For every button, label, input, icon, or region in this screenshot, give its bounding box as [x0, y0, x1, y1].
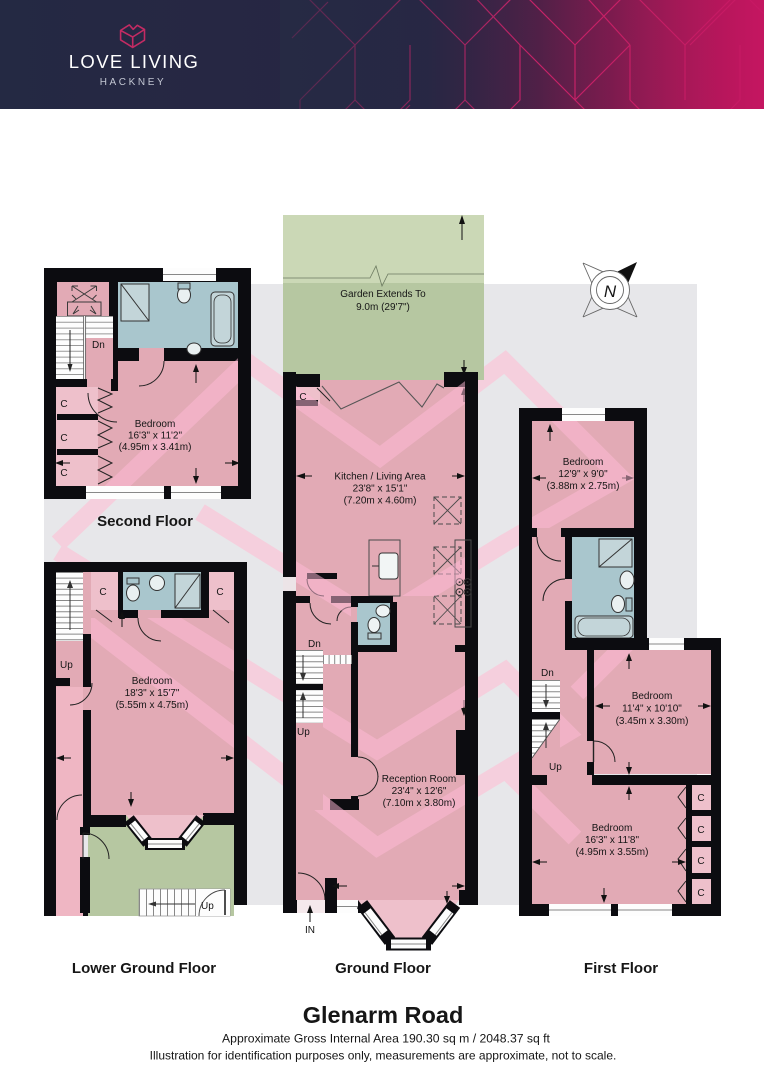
svg-text:9.0m (29'7"): 9.0m (29'7") — [356, 302, 410, 313]
svg-text:C: C — [697, 856, 704, 867]
svg-text:Lower Ground Floor: Lower Ground Floor — [72, 960, 216, 977]
svg-text:(3.45m x 3.30m): (3.45m x 3.30m) — [616, 716, 689, 727]
svg-text:Approximate Gross Internal Are: Approximate Gross Internal Area 190.30 s… — [222, 1032, 551, 1046]
svg-text:Reception Room: Reception Room — [382, 774, 456, 785]
svg-text:Second Floor: Second Floor — [97, 513, 193, 530]
svg-text:11'4" x 10'10": 11'4" x 10'10" — [622, 704, 682, 715]
svg-text:C: C — [697, 825, 704, 836]
svg-text:Dn: Dn — [308, 639, 321, 650]
svg-text:23'8" x 15'1": 23'8" x 15'1" — [353, 484, 408, 495]
svg-text:Dn: Dn — [92, 340, 105, 351]
svg-text:Bedroom: Bedroom — [563, 457, 604, 468]
svg-text:Illustration for identificatio: Illustration for identification purposes… — [150, 1049, 617, 1063]
svg-text:12'9" x 9'0": 12'9" x 9'0" — [558, 469, 608, 480]
svg-text:(4.95m x 3.41m): (4.95m x 3.41m) — [119, 442, 192, 453]
svg-text:(3.88m x 2.75m): (3.88m x 2.75m) — [547, 481, 620, 492]
svg-text:C: C — [697, 793, 704, 804]
svg-text:Garden Extends To: Garden Extends To — [340, 289, 426, 300]
svg-text:Bedroom: Bedroom — [592, 823, 633, 834]
svg-text:Kitchen / Living Area: Kitchen / Living Area — [334, 472, 426, 483]
svg-text:Up: Up — [297, 727, 310, 738]
svg-text:16'3" x 11'8": 16'3" x 11'8" — [585, 835, 640, 846]
svg-text:(4.95m x 3.55m): (4.95m x 3.55m) — [576, 847, 649, 858]
svg-text:C: C — [60, 399, 67, 410]
svg-text:Bedroom: Bedroom — [132, 676, 173, 687]
svg-text:18'3" x 15'7": 18'3" x 15'7" — [125, 688, 180, 699]
svg-text:Glenarm Road: Glenarm Road — [303, 1002, 464, 1028]
svg-text:Up: Up — [60, 660, 73, 671]
svg-text:Bedroom: Bedroom — [632, 691, 673, 702]
svg-text:First Floor: First Floor — [584, 960, 658, 977]
svg-text:N: N — [604, 282, 617, 301]
svg-text:C: C — [60, 433, 67, 444]
svg-text:IN: IN — [305, 925, 315, 936]
svg-text:C: C — [299, 392, 306, 403]
svg-text:(7.20m x 4.60m): (7.20m x 4.60m) — [344, 496, 417, 507]
svg-text:C: C — [697, 888, 704, 899]
svg-text:16'3" x 11'2": 16'3" x 11'2" — [128, 431, 183, 442]
svg-text:Up: Up — [201, 901, 214, 912]
svg-text:23'4" x 12'6": 23'4" x 12'6" — [392, 786, 447, 797]
svg-text:(5.55m x 4.75m): (5.55m x 4.75m) — [116, 700, 189, 711]
svg-text:HACKNEY: HACKNEY — [100, 77, 167, 88]
svg-text:LOVE LIVING: LOVE LIVING — [69, 51, 200, 72]
svg-text:C: C — [216, 587, 223, 598]
svg-text:Ground Floor: Ground Floor — [335, 960, 431, 977]
svg-text:Bedroom: Bedroom — [135, 419, 176, 430]
svg-text:C: C — [60, 468, 67, 479]
svg-text:(7.10m x 3.80m): (7.10m x 3.80m) — [383, 798, 456, 809]
svg-text:Dn: Dn — [541, 668, 554, 679]
svg-text:C: C — [99, 587, 106, 598]
svg-text:Up: Up — [549, 762, 562, 773]
